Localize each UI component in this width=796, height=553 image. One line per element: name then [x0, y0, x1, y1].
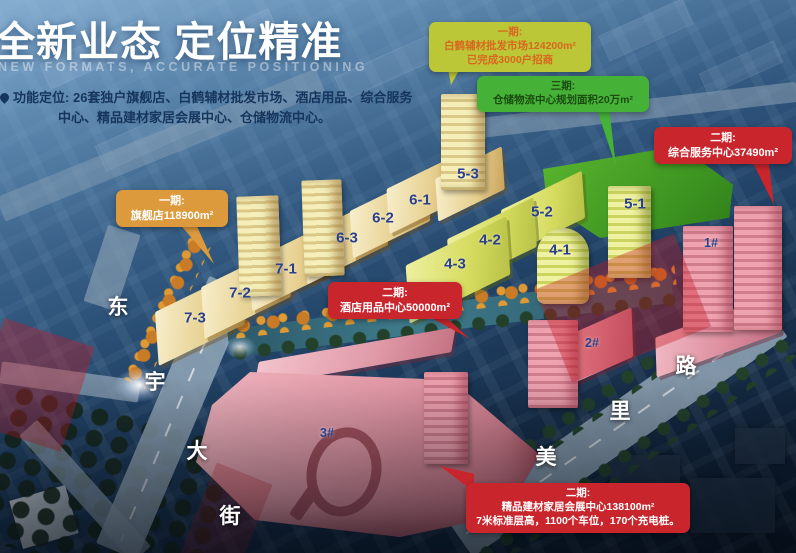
phase-label: 一期:: [124, 194, 220, 209]
background-block: [735, 428, 785, 464]
location-pin-icon: [0, 91, 11, 104]
callout-phase2-expo-center: 二期: 精品建材家居会展中心138100m² 7米标准层高，1100个车位，17…: [466, 483, 690, 533]
building-label-4-2: 4-2: [479, 232, 501, 249]
phase-label: 一期:: [437, 26, 583, 40]
callout-phase1-flagship: 一期: 旗舰店118900m²: [116, 190, 228, 227]
callout-line: 7米标准层高，1100个车位，170个充电桩。: [474, 515, 682, 529]
cream-tower: [236, 195, 281, 296]
building-label-6-3: 6-3: [336, 230, 358, 247]
building-label-4-3: 4-3: [444, 256, 466, 273]
background-block: [690, 478, 775, 533]
street-name-dongyu-char: 宇: [145, 366, 166, 396]
building-3-tower: [424, 372, 468, 464]
page-subtitle: NEW FORMATS, ACCURATE POSITIONING: [0, 60, 368, 74]
street-light-flare: [218, 332, 262, 362]
callout-phase2-service-center: 二期: 综合服务中心37490m²: [654, 127, 792, 164]
building-label-5-2: 5-2: [531, 204, 553, 221]
street-name-dongyu-char: 大: [187, 435, 208, 465]
functional-positioning-text: 功能定位: 26套独户旗舰店、白鹤辅材批发市场、酒店用品、综合服务中心、精品建材…: [0, 88, 420, 128]
street-name-meili-char: 路: [676, 350, 697, 380]
building-label-6-1: 6-1: [409, 192, 431, 209]
building-label-5-1: 5-1: [624, 196, 646, 213]
building-label-4-1: 4-1: [549, 242, 571, 259]
page-title: 全新业态 定位精准: [0, 8, 342, 68]
street-name-dongyu-char: 街: [220, 500, 241, 530]
phase-label: 二期:: [474, 487, 682, 501]
callout-line: 酒店用品中心50000m²: [336, 301, 454, 316]
callout-line: 白鹤辅材批发市场124200m²: [437, 40, 583, 54]
site-plan-rendering: 5-3 6-1 5-2 5-1 6-2 6-3 4-2 4-1 4-3 7-1 …: [0, 0, 796, 553]
building-label-3: 3#: [320, 426, 334, 440]
street-name-meili-char: 里: [610, 395, 631, 425]
building-label-5-3: 5-3: [457, 166, 479, 183]
phase-label: 二期:: [336, 286, 454, 301]
callout-line: 精品建材家居会展中心138100m²: [474, 501, 682, 515]
callout-line: 综合服务中心37490m²: [662, 146, 784, 161]
cream-tower: [301, 179, 344, 276]
callout-line: 仓储物流中心规划面积20万m²: [485, 94, 641, 108]
street-name-meili-char: 美: [536, 441, 557, 471]
callout-line: 旗舰店118900m²: [124, 209, 220, 224]
building-label-7-1: 7-1: [275, 261, 297, 278]
phase-label: 二期:: [662, 131, 784, 146]
building-label-7-2: 7-2: [229, 285, 251, 302]
functional-positioning-body: 26套独户旗舰店、白鹤辅材批发市场、酒店用品、综合服务中心、精品建材家居会展中心…: [58, 90, 412, 125]
building-label-7-3: 7-3: [184, 310, 206, 327]
callout-phase2-hotel-supplies: 二期: 酒店用品中心50000m²: [328, 282, 462, 319]
callout-phase1-wholesale-market: 一期: 白鹤辅材批发市场124200m² 已完成3000户招商: [429, 22, 591, 72]
building-label-2: 2#: [585, 336, 599, 350]
phase-label: 三期:: [485, 80, 641, 94]
callout-phase3-logistics: 三期: 仓储物流中心规划面积20万m²: [477, 76, 649, 112]
building-label-6-2: 6-2: [372, 210, 394, 227]
callout-line: 已完成3000户招商: [437, 54, 583, 68]
building-1-tower: [734, 206, 782, 330]
building-label-1: 1#: [704, 236, 718, 250]
functional-positioning-label: 功能定位:: [13, 90, 69, 105]
street-name-dongyu-char: 东: [108, 291, 129, 321]
